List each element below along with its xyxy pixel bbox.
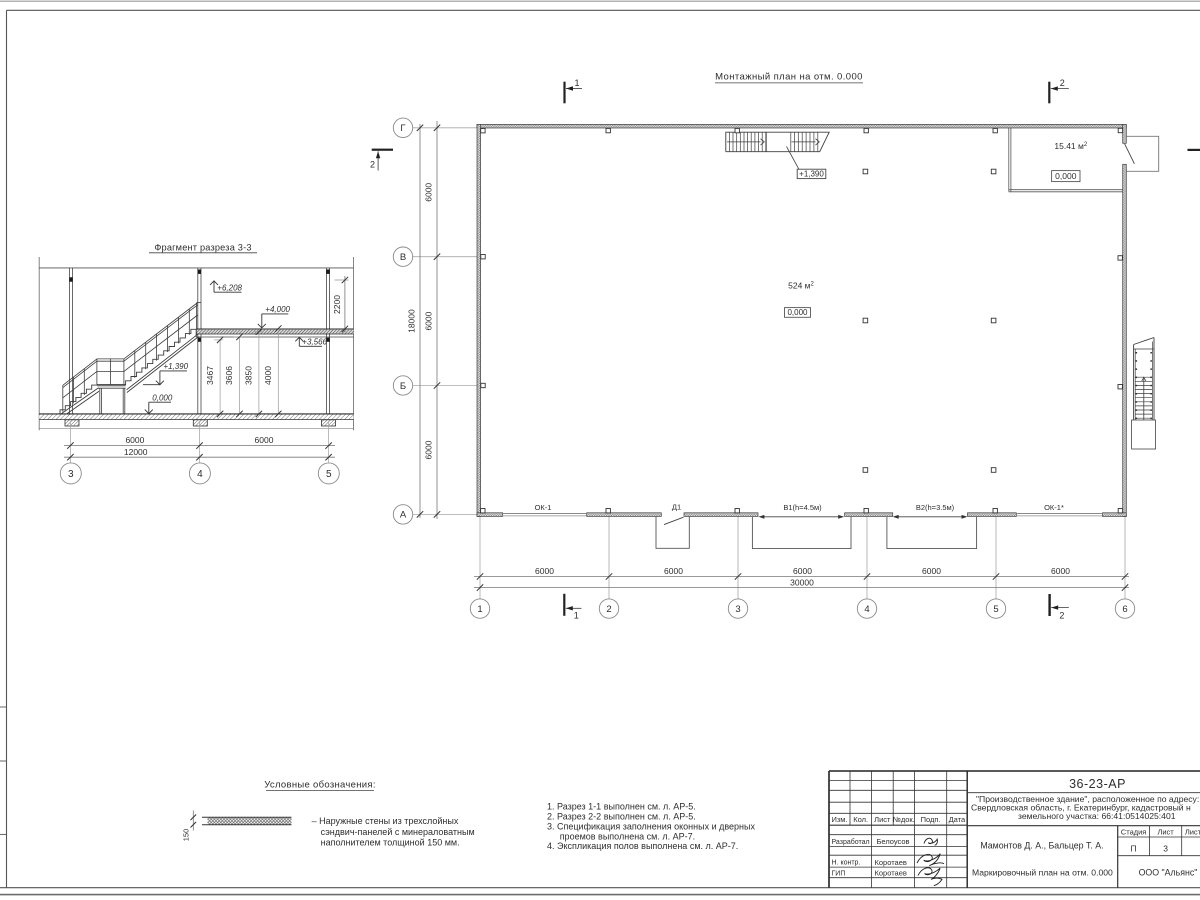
svg-text:1. Разрез 1-1 выполнен см. л.: 1. Разрез 1-1 выполнен см. л. АР-5. — [547, 802, 696, 812]
svg-text:П: П — [1131, 843, 1137, 853]
svg-text:6000: 6000 — [793, 566, 812, 576]
svg-text:2: 2 — [1060, 78, 1065, 88]
svg-text:В1(h=4.5м): В1(h=4.5м) — [783, 503, 822, 512]
svg-text:6000: 6000 — [535, 566, 554, 576]
svg-text:Г: Г — [400, 123, 405, 134]
svg-text:+6,208: +6,208 — [217, 284, 242, 293]
svg-text:3: 3 — [68, 469, 74, 480]
svg-text:5: 5 — [326, 469, 332, 480]
svg-text:наполнителем толщиной 150 мм.: наполнителем толщиной 150 мм. — [321, 838, 460, 848]
svg-text:3850: 3850 — [244, 366, 254, 385]
svg-text:Подп.: Подп. — [921, 815, 941, 824]
svg-text:4. Экспликация полов выполнена: 4. Экспликация полов выполнена см. л. АР… — [547, 841, 738, 851]
svg-text:1: 1 — [575, 78, 580, 88]
svg-text:+3,566: +3,566 — [302, 338, 327, 347]
svg-text:Фрагмент разреза 3-3: Фрагмент разреза 3-3 — [154, 243, 251, 253]
svg-text:А: А — [400, 510, 407, 521]
svg-text:6000: 6000 — [664, 566, 683, 576]
svg-text:ОК-1: ОК-1 — [535, 503, 552, 512]
svg-text:Листов: Листов — [1185, 827, 1200, 836]
svg-text:6000: 6000 — [423, 183, 433, 202]
svg-text:Белоусов: Белоусов — [876, 837, 909, 846]
svg-text:3467: 3467 — [205, 366, 215, 385]
svg-text:3: 3 — [1163, 843, 1168, 853]
svg-text:12000: 12000 — [124, 447, 148, 457]
svg-text:2. Разрез 2-2 выполнен см. л.: 2. Разрез 2-2 выполнен см. л. АР-5. — [547, 812, 696, 822]
svg-text:+1,390: +1,390 — [163, 362, 188, 371]
svg-text:6000: 6000 — [922, 566, 941, 576]
svg-text:3606: 3606 — [224, 366, 234, 385]
svg-text:Б: Б — [400, 381, 406, 392]
svg-text:Д1: Д1 — [672, 503, 681, 512]
svg-text:В: В — [400, 252, 406, 263]
svg-text:150: 150 — [181, 829, 190, 842]
svg-text:ОК-1*: ОК-1* — [1044, 503, 1064, 512]
svg-text:Н. контр.: Н. контр. — [832, 860, 861, 867]
svg-text:Лист: Лист — [874, 815, 891, 824]
svg-text:0,000: 0,000 — [1055, 171, 1077, 181]
svg-text:6000: 6000 — [255, 435, 274, 445]
svg-text:Стадия: Стадия — [1121, 827, 1147, 836]
svg-text:Лист: Лист — [1157, 827, 1174, 836]
svg-text:№док.: №док. — [893, 815, 915, 824]
svg-text:2: 2 — [606, 604, 611, 615]
svg-text:36-23-АР: 36-23-АР — [1069, 777, 1126, 791]
svg-text:4000: 4000 — [263, 366, 273, 385]
svg-text:2: 2 — [1059, 610, 1064, 620]
svg-text:Маркировочный план на отм. 0.0: Маркировочный план на отм. 0.000 — [972, 867, 1113, 877]
svg-text:18000: 18000 — [406, 309, 416, 333]
svg-text:6000: 6000 — [125, 435, 144, 445]
svg-text:Коротаев: Коротаев — [874, 858, 906, 867]
svg-text:0,000: 0,000 — [152, 393, 173, 402]
svg-text:Монтажный план на отм. 0.000: Монтажный план на отм. 0.000 — [715, 71, 863, 82]
svg-text:Разработал: Разработал — [832, 838, 870, 846]
svg-text:2200: 2200 — [332, 295, 342, 314]
svg-text:2: 2 — [370, 160, 375, 170]
svg-text:В2(h=3.5м): В2(h=3.5м) — [916, 503, 955, 512]
svg-text:сэндвич-панелей с минераловатн: сэндвич-панелей с минераловатным — [321, 827, 475, 837]
svg-text:6: 6 — [1122, 604, 1127, 615]
svg-text:5: 5 — [993, 604, 998, 615]
svg-text:Коротаев: Коротаев — [874, 869, 906, 878]
svg-text:Дата: Дата — [949, 815, 966, 824]
svg-text:– Наружные стены из трехслойны: – Наружные стены из трехслойных — [312, 816, 459, 826]
svg-text:ООО "Альянс": ООО "Альянс" — [1139, 868, 1198, 878]
svg-text:Изм.: Изм. — [831, 815, 847, 824]
svg-text:земельного участка: 66:41:0514: земельного участка: 66:41:0514025:401 — [1018, 811, 1176, 821]
svg-text:6000: 6000 — [423, 440, 433, 459]
svg-text:+4,000: +4,000 — [265, 305, 290, 314]
svg-text:Мамонтов Д. А., Бальцер Т. А.: Мамонтов Д. А., Бальцер Т. А. — [980, 840, 1103, 850]
svg-text:1: 1 — [574, 610, 579, 620]
svg-text:0,000: 0,000 — [787, 308, 808, 317]
svg-text:3. Спецификация заполнения око: 3. Спецификация заполнения оконных и две… — [547, 821, 755, 831]
svg-text:+1,390: +1,390 — [799, 170, 824, 179]
svg-text:Условные обозначения:: Условные обозначения: — [264, 780, 376, 791]
svg-text:30000: 30000 — [790, 577, 814, 587]
svg-text:15.41 м2: 15.41 м2 — [1054, 141, 1087, 151]
svg-text:ГИП: ГИП — [832, 870, 846, 877]
svg-text:4: 4 — [864, 604, 869, 615]
svg-text:6000: 6000 — [423, 311, 433, 330]
svg-text:1: 1 — [477, 604, 482, 615]
svg-text:6000: 6000 — [1051, 566, 1070, 576]
svg-text:3: 3 — [735, 604, 740, 615]
svg-text:4: 4 — [197, 469, 203, 480]
svg-text:Кол.: Кол. — [853, 815, 868, 824]
